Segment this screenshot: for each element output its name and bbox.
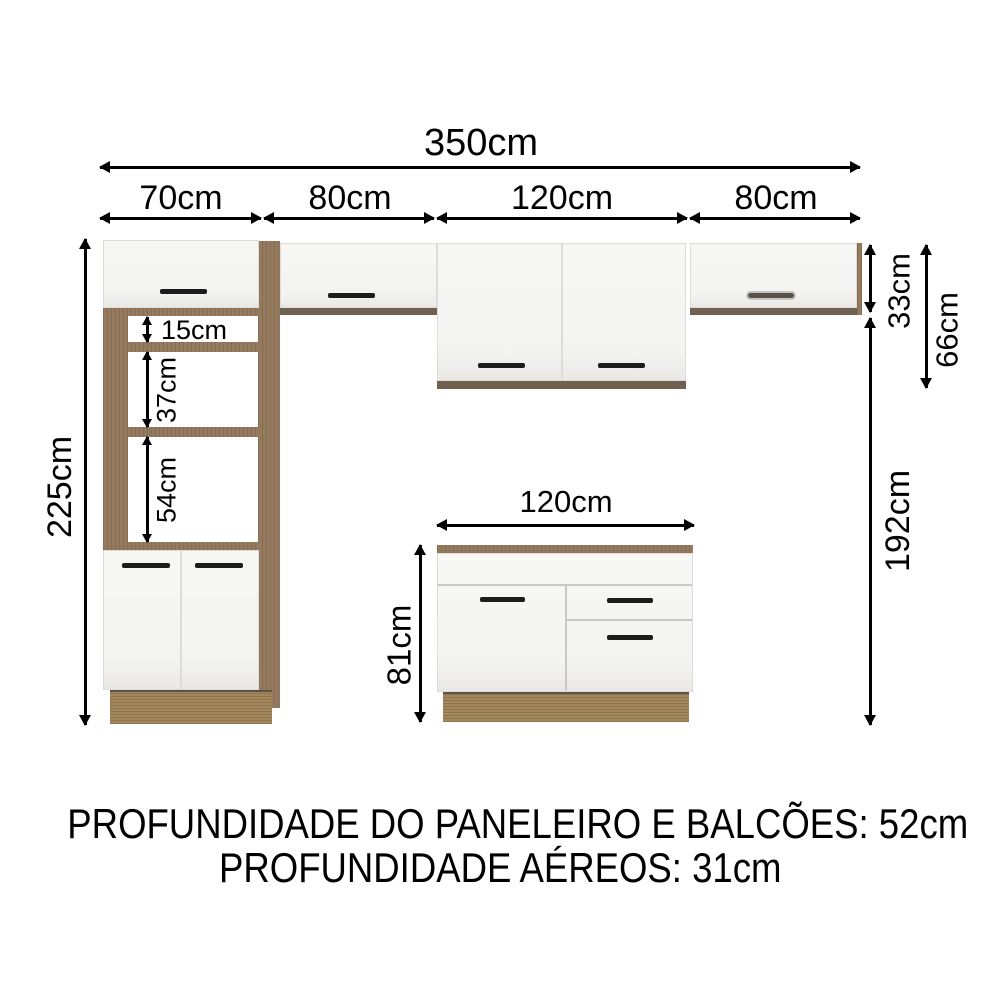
wall-cabinet-80-right-side-edge [857, 243, 862, 315]
dimension-label-aereo-height: 33cm [884, 253, 915, 329]
wall-cabinet-80-left-bottom-edge [280, 308, 437, 315]
dimension-arrow-segment-80-right [690, 217, 860, 220]
dimension-label-segment-70: 70cm [139, 181, 222, 215]
wall-cabinet-80-left-handle [328, 293, 375, 298]
wall-cabinet-120-bottom-edge [437, 381, 686, 389]
kitchen-dimension-diagram: 350cm 70cm 80cm 120cm 80cm 225cm 15cm 37… [0, 0, 1000, 1000]
dimension-label-left-height: 225cm [43, 436, 77, 538]
dimension-arrow-left-height [84, 239, 87, 725]
wall-cabinet-80-right-handle [746, 291, 796, 300]
base-cabinet-plinth [443, 692, 689, 722]
dimension-arrow-total-width [100, 166, 860, 169]
base-cabinet-door-handle [480, 597, 525, 602]
tall-cabinet-plinth [110, 690, 272, 724]
dimension-arrow-base-height [419, 545, 422, 722]
dimension-label-below-aereo: 192cm [881, 470, 915, 572]
dimension-label-segment-80-right: 80cm [734, 181, 817, 215]
dimension-label-aereo-tall-height: 66cm [932, 292, 963, 368]
dimension-label-segment-80-left: 80cm [308, 181, 391, 215]
dimension-arrow-below-aereo [869, 318, 872, 725]
tall-cabinet-bottom-rail [103, 542, 259, 550]
base-cabinet-drawer-handle-bottom [607, 635, 653, 640]
dimension-label-total-width: 350cm [424, 124, 538, 162]
depth-note-wall-units: PROFUNDIDADE AÉREOS: 31cm [219, 846, 781, 890]
dimension-label-base-height: 81cm [383, 605, 416, 686]
depth-note-cabinets: PROFUNDIDADE DO PANELEIRO E BALCÕES: 52c… [67, 802, 968, 846]
tall-cabinet-side-panel [258, 241, 280, 708]
dimension-arrow-segment-70 [100, 217, 261, 220]
tall-cabinet-top-door [103, 240, 259, 308]
dimension-arrow-base-width [437, 524, 694, 527]
wall-cabinet-120-left-handle [478, 363, 525, 368]
dimension-arrow-segment-80-left [264, 217, 434, 220]
dimension-arrow-segment-120 [437, 217, 687, 220]
dimension-label-segment-120: 120cm [511, 181, 613, 215]
base-cabinet-center-seam [565, 585, 567, 691]
dimension-arrow-shelf-54 [146, 437, 149, 542]
dimension-arrow-aereo-height [869, 245, 872, 312]
tall-cabinet-bottom-left-handle [122, 563, 170, 568]
dimension-label-shelf-37: 37cm [154, 357, 181, 423]
base-cabinet-drawer-seam [567, 619, 692, 621]
base-cabinet-open-top-edge [437, 545, 693, 553]
tall-cabinet-shelf-2 [103, 427, 259, 437]
wall-cabinet-120-door-left [437, 243, 562, 381]
dimension-label-shelf-54: 54cm [154, 457, 181, 523]
tall-cabinet-top-door-handle [160, 289, 207, 294]
tall-cabinet-bottom-right-handle [195, 563, 243, 568]
depth-notes: PROFUNDIDADE DO PANELEIRO E BALCÕES: 52c… [0, 802, 1000, 890]
dimension-label-base-width: 120cm [519, 486, 612, 517]
dimension-arrow-aereo-tall-height [925, 245, 928, 388]
base-cabinet-drawer-handle-top [607, 598, 653, 603]
tall-cabinet-bottom-door-left [103, 550, 181, 690]
wall-cabinet-120-right-handle [598, 363, 645, 368]
dimension-arrow-shelf-37 [146, 352, 149, 427]
wall-cabinet-80-left-door [280, 243, 437, 308]
tall-cabinet-bottom-door-right [181, 550, 259, 690]
dimension-arrow-shelf-15 [146, 317, 149, 342]
wall-cabinet-120-door-right [562, 243, 686, 381]
wall-cabinet-80-right-bottom-edge [690, 308, 857, 315]
dimension-label-shelf-15: 15cm [161, 317, 227, 344]
